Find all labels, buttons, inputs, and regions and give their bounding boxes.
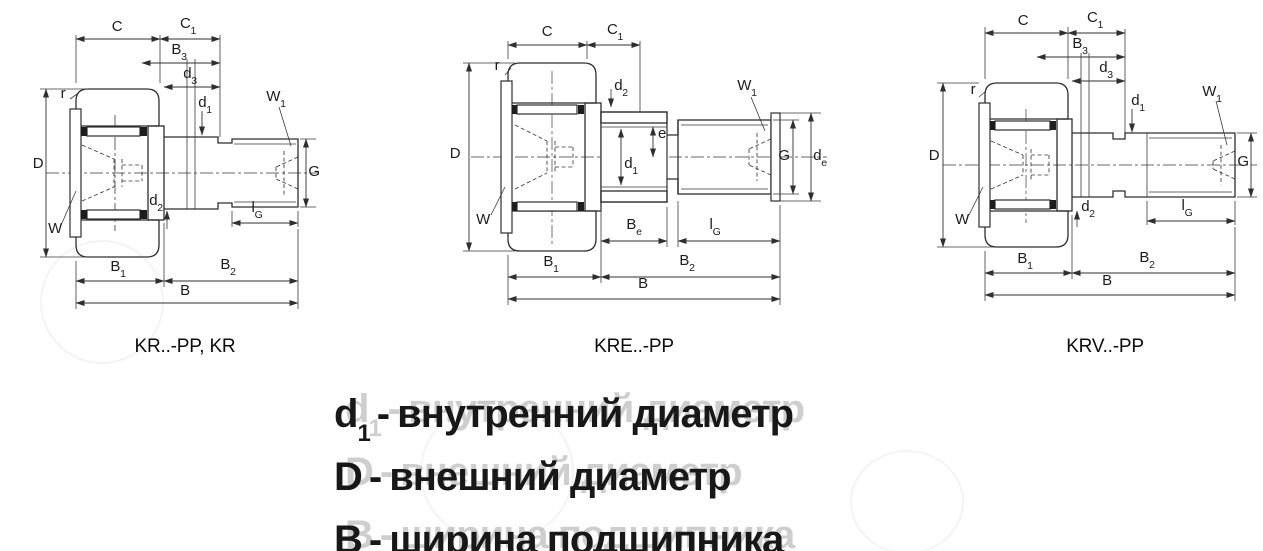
dim-label-d2: d2	[614, 78, 628, 97]
dim-label-be: Be	[626, 217, 641, 236]
dim-label-w1: W1	[266, 89, 285, 108]
legend-line-B: B-ширина подшипника	[334, 516, 793, 551]
dim-label-lg: lG	[252, 200, 263, 219]
dim-label-r: r	[61, 86, 66, 105]
legend-line-d1: d1-внутренний диаметр	[334, 390, 793, 453]
dim-label-w1: W1	[1202, 84, 1221, 103]
legend-line-D: D-внешний диаметр	[334, 453, 793, 516]
dim-label-b3: B3	[1072, 36, 1087, 55]
dim-label-b: B	[180, 283, 190, 302]
dim-label-r: r	[495, 58, 500, 77]
dim-label-b1: B1	[1017, 251, 1032, 270]
dim-label-g: G	[308, 164, 319, 183]
dim-label-w: W	[955, 212, 969, 231]
dim-label-b1: B1	[543, 254, 558, 273]
dim-label-b: B	[1102, 273, 1112, 292]
dim-label-c: C	[542, 24, 553, 43]
figure-krv-pp: C C1 B3 d3 d1 W1 r D G lG d2 W B1 B2 B	[925, 5, 1260, 315]
dim-label-e: e	[658, 126, 666, 145]
legend: d1-внутренний диаметр D-внешний диаметр …	[334, 390, 793, 551]
dim-label-c: C	[1018, 13, 1029, 32]
dim-label-b1: B1	[110, 259, 125, 278]
dim-label-d1: d1	[198, 95, 212, 114]
figure-caption-krv: KRV..-PP	[1030, 336, 1180, 358]
dim-label-d1: d1	[1131, 93, 1145, 112]
legend-definition: внутренний диаметр	[397, 392, 793, 436]
dim-label-c1: C1	[180, 16, 196, 35]
dim-label-w1: W1	[737, 78, 756, 97]
dim-label-d3: d3	[183, 66, 197, 85]
figure-kr-pp-kr: C C1 B3 d3 d1 W1 r D G lG d2 W B1 B2 B	[30, 5, 320, 315]
dim-label-d: D	[929, 148, 940, 167]
dim-label-d3: d3	[1099, 60, 1113, 79]
figure-kre-pp: C C1 r D d2 e d1 W1 G de W Be lG B1 B2 B	[435, 15, 835, 335]
bearing-cross-section-krv	[925, 5, 1260, 315]
dim-label-lg: lG	[1182, 198, 1193, 217]
watermark-ghost	[850, 450, 964, 551]
dim-label-d: D	[33, 156, 44, 175]
dim-label-d: D	[450, 146, 461, 165]
legend-term: d1	[334, 392, 370, 436]
dim-label-w: W	[476, 212, 490, 231]
dim-label-d2: d2	[149, 193, 163, 212]
dim-label-de: de	[813, 148, 827, 167]
dim-label-d2: d2	[1081, 199, 1095, 218]
dim-label-d1: d1	[624, 156, 638, 175]
dim-label-b2: B2	[220, 257, 235, 276]
technical-drawing-page: C C1 B3 d3 d1 W1 r D G lG d2 W B1 B2 B	[0, 0, 1263, 551]
dim-label-c: C	[112, 19, 123, 38]
dim-label-c1: C1	[607, 22, 623, 41]
dim-label-b2: B2	[679, 253, 694, 272]
dim-label-c1: C1	[1087, 10, 1103, 29]
legend-separator: -	[369, 455, 381, 499]
figure-caption-kr: KR..-PP, KR	[110, 336, 260, 358]
legend-definition: ширина подшипника	[389, 518, 783, 551]
legend-term: D	[334, 455, 362, 499]
dim-label-b: B	[638, 276, 648, 295]
dim-label-b3: B3	[171, 42, 186, 61]
figure-caption-kre: KRE..-PP	[559, 336, 709, 358]
dim-label-r: r	[971, 82, 976, 101]
dim-label-b2: B2	[1139, 250, 1154, 269]
dim-label-g: G	[778, 148, 789, 167]
legend-definition: внешний диаметр	[389, 455, 730, 499]
dim-label-lg: lG	[710, 217, 721, 236]
legend-term: B	[334, 518, 362, 551]
legend-separator: -	[369, 518, 381, 551]
dim-label-w: W	[48, 221, 62, 240]
dim-label-g: G	[1237, 154, 1248, 173]
legend-separator: -	[377, 392, 389, 436]
